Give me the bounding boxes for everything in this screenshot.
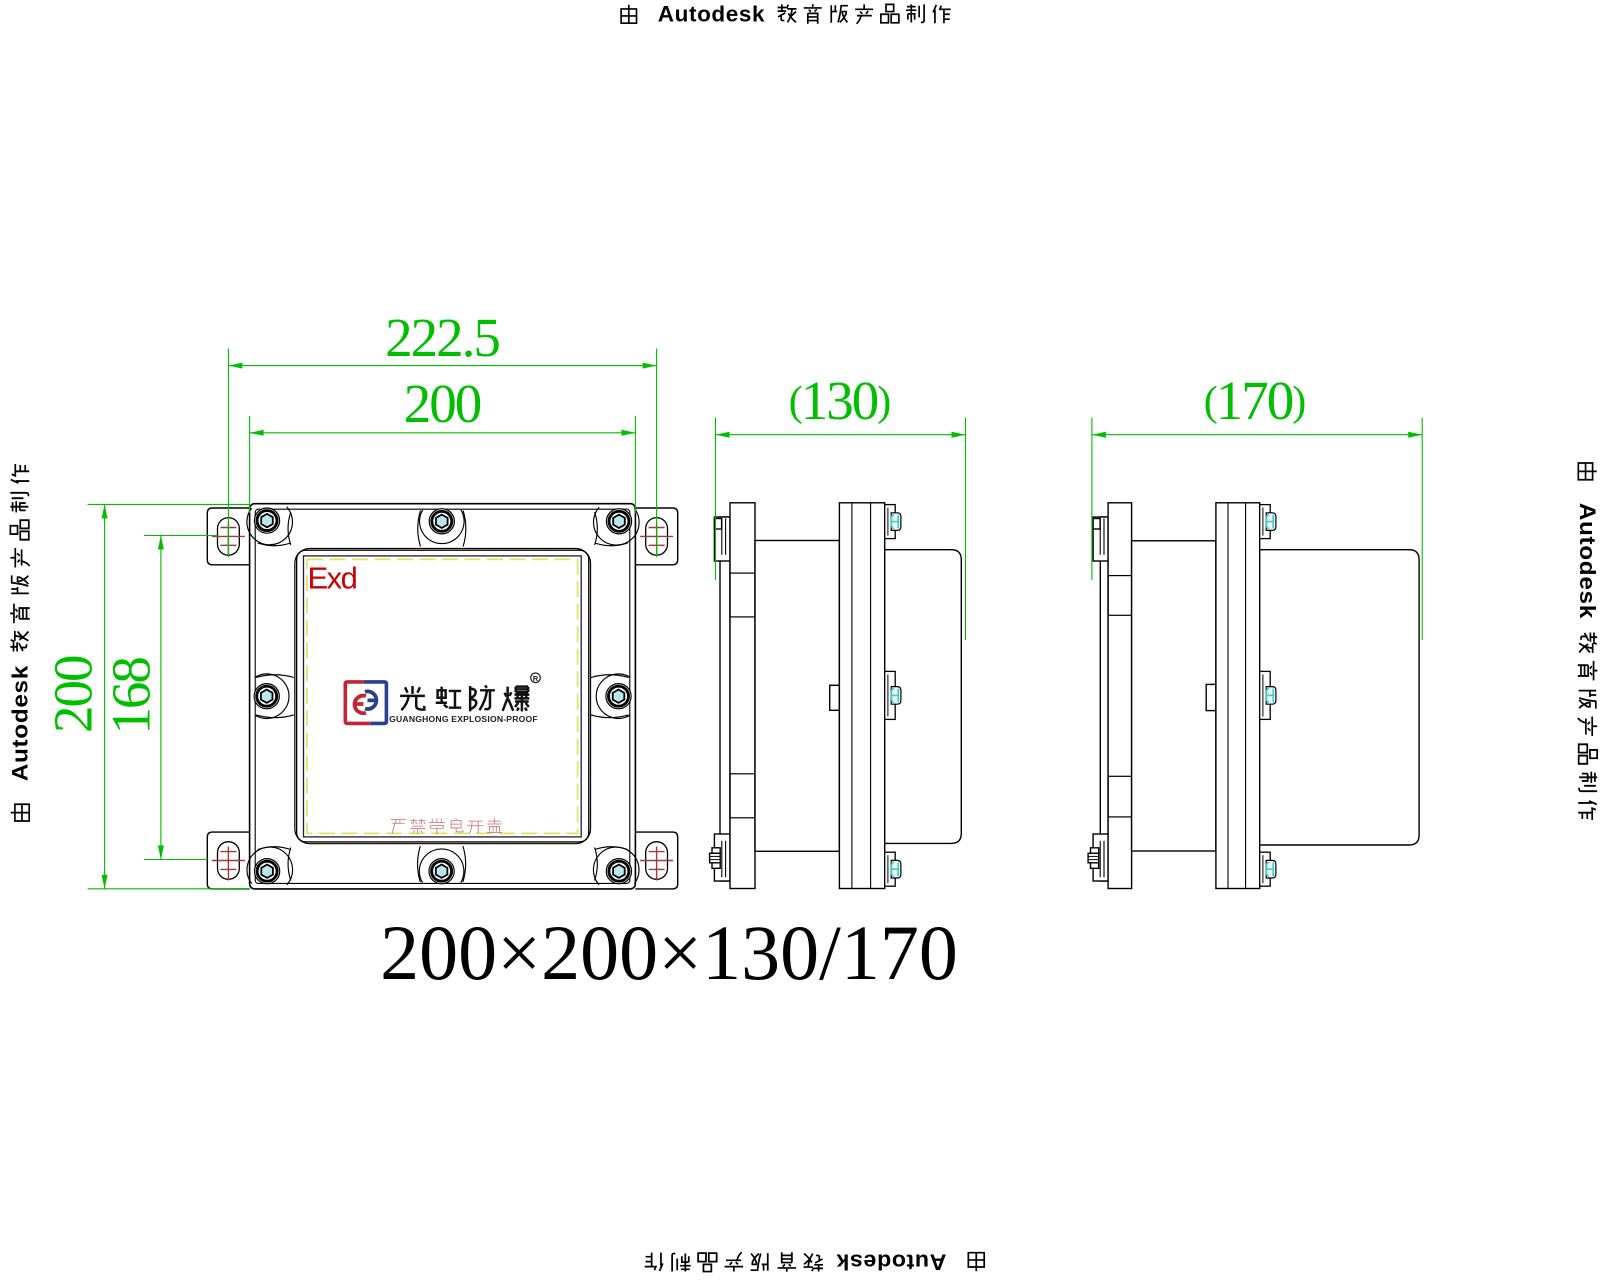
svg-text:Autodesk: Autodesk [658, 1, 765, 26]
svg-text:200×200×130/170: 200×200×130/170 [380, 909, 958, 996]
svg-text:200: 200 [42, 656, 103, 733]
svg-text:168: 168 [101, 658, 162, 735]
svg-text:Autodesk: Autodesk [1575, 503, 1600, 620]
svg-text:222.5: 222.5 [385, 307, 499, 368]
svg-text:Autodesk: Autodesk [7, 665, 32, 782]
svg-text:GUANGHONG EXPLOSION-PROOF: GUANGHONG EXPLOSION-PROOF [389, 714, 538, 724]
svg-text:200: 200 [404, 373, 481, 434]
svg-text:(170): (170) [1204, 370, 1306, 431]
svg-text:R: R [533, 674, 539, 683]
svg-text:Autodesk: Autodesk [836, 1250, 946, 1276]
svg-text:(130): (130) [789, 370, 891, 431]
svg-text:Exd: Exd [308, 561, 357, 596]
